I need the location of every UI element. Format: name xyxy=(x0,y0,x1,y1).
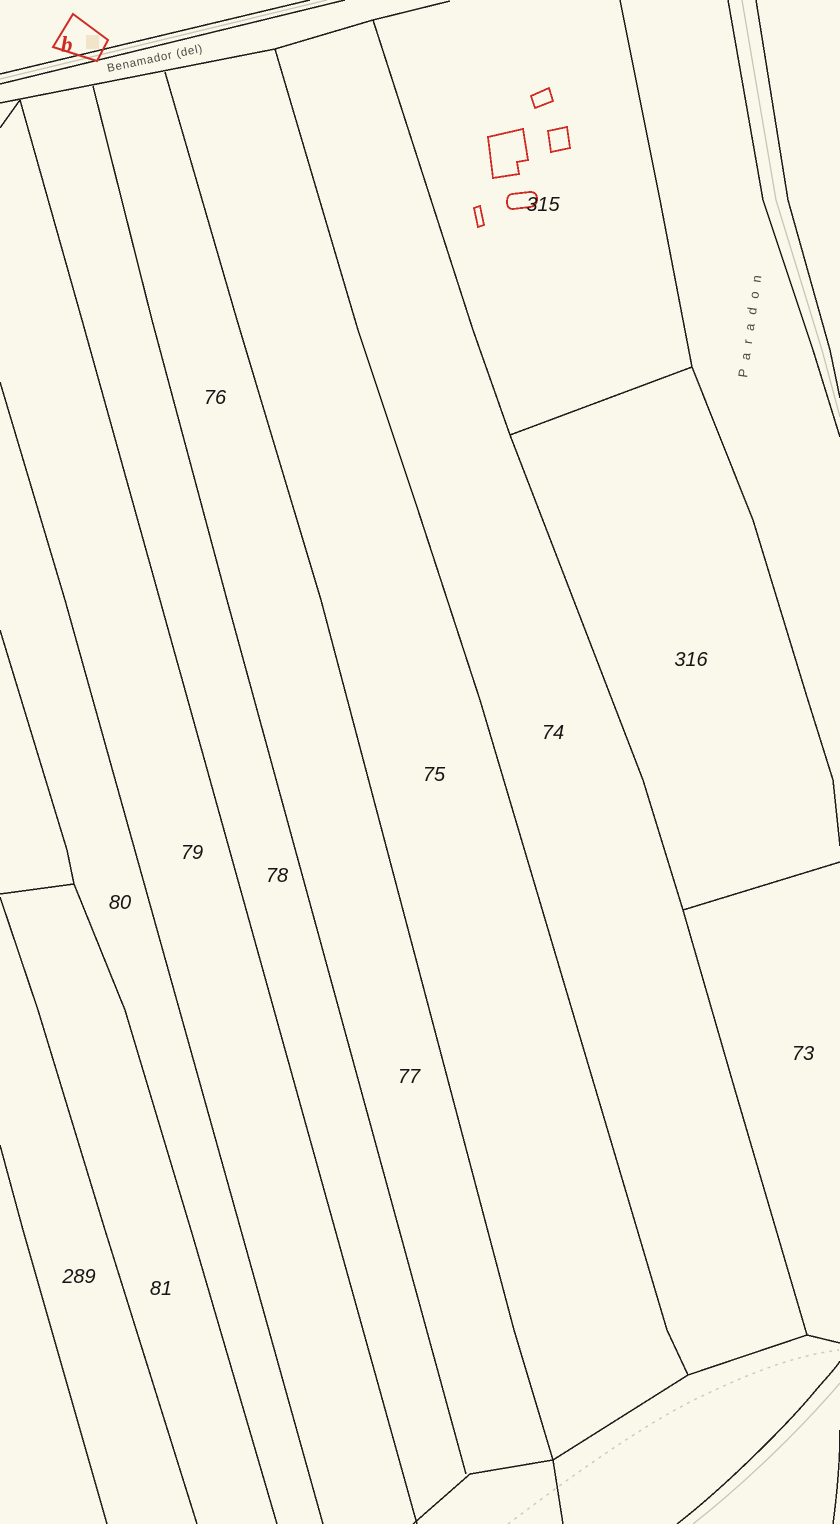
boundary-line xyxy=(93,86,466,1474)
road-bottom-centerline xyxy=(693,1383,840,1524)
marker-square xyxy=(86,35,99,49)
road-bottom-lower-edge xyxy=(833,1430,840,1524)
parcel-label-289[interactable]: 289 xyxy=(61,1266,95,1288)
road-right-right-edge xyxy=(756,0,840,398)
boundary-line xyxy=(683,862,840,910)
cadastral-marker[interactable]: b xyxy=(53,14,108,61)
road-top-group: Benamador (del) xyxy=(0,0,345,84)
parcel-label-81[interactable]: 81 xyxy=(150,1278,172,1300)
boundary-line xyxy=(510,367,692,435)
boundary-line xyxy=(0,630,277,1524)
building-outline xyxy=(548,127,570,152)
boundary-line xyxy=(165,72,553,1460)
parcel-label-75[interactable]: 75 xyxy=(423,764,446,786)
road-top-centerline xyxy=(0,0,327,79)
map-viewport[interactable]: Benamador (del) Paradon xyxy=(0,0,840,1524)
parcel-label-316[interactable]: 316 xyxy=(674,649,708,671)
boundary-line xyxy=(0,897,197,1524)
road-bottom-upper-edge xyxy=(677,1361,840,1524)
parcel-label-76[interactable]: 76 xyxy=(204,387,227,409)
parcel-label-77[interactable]: 77 xyxy=(398,1066,421,1088)
parcel-label-79[interactable]: 79 xyxy=(181,842,203,864)
marker-label: b xyxy=(61,32,73,57)
parcel-label-315[interactable]: 315 xyxy=(526,194,560,216)
road-right-group: Paradon xyxy=(728,0,840,437)
road-bottom-group xyxy=(508,1350,840,1524)
road-paradon-label: Paradon xyxy=(735,265,765,378)
boundary-line xyxy=(0,382,323,1524)
parcel-label-78[interactable]: 78 xyxy=(266,865,288,887)
boundary-line xyxy=(373,20,807,1335)
parcel-label-80[interactable]: 80 xyxy=(109,892,131,914)
boundary-line xyxy=(0,884,74,894)
boundary-line xyxy=(20,100,417,1524)
boundary-line xyxy=(275,49,688,1375)
road-benamador-label: Benamador (del) xyxy=(106,43,204,75)
boundary-line xyxy=(620,0,840,846)
parcel-label-73[interactable]: 73 xyxy=(792,1043,814,1065)
boundary-line xyxy=(413,1335,840,1524)
parcel-boundaries xyxy=(0,0,840,1524)
building-outline xyxy=(474,206,484,227)
building-outline xyxy=(488,129,528,178)
boundary-line xyxy=(553,1460,563,1524)
parcel-label-74[interactable]: 74 xyxy=(542,722,564,744)
boundary-line xyxy=(0,1145,107,1524)
parcel-labels: 76 315 316 74 75 79 78 80 77 73 289 81 xyxy=(61,194,814,1300)
boundary-line xyxy=(0,100,20,128)
building-outline xyxy=(531,88,553,108)
road-top-lower-edge xyxy=(0,0,345,84)
edge-partial-label: 1 f xyxy=(3,1519,34,1524)
cadastral-map[interactable]: Benamador (del) Paradon xyxy=(0,0,840,1524)
